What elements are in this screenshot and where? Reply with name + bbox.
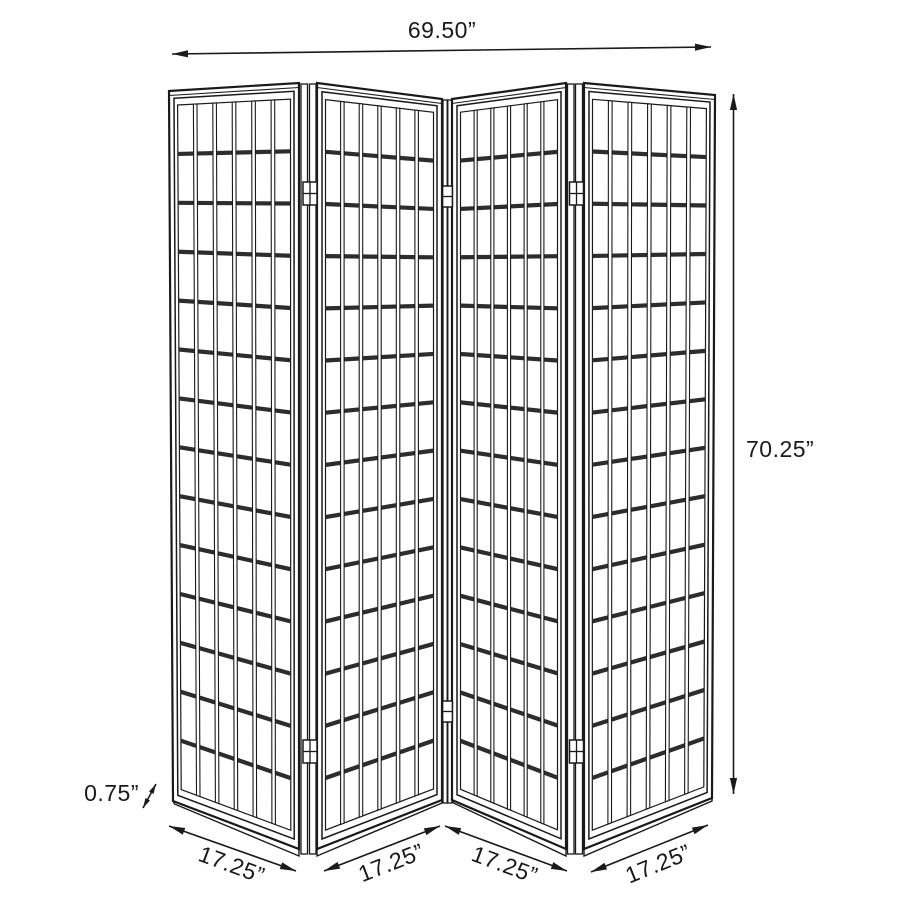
- hinge-block: [443, 701, 453, 722]
- total-width-dimension: 69.50”: [172, 17, 711, 54]
- panel-height-label: 70.25”: [746, 436, 814, 462]
- lattice-mullion: [524, 104, 527, 818]
- lattice-mullion: [627, 102, 632, 817]
- panel-width-label-4: 17.25”: [622, 839, 695, 889]
- panel-4: [584, 83, 715, 856]
- lattice-mullion: [474, 110, 477, 796]
- folding-screen-diagram: 69.50” 70.25” 0.75” 17.25” 17.25” 17.25”: [0, 0, 900, 900]
- lattice-mullion: [252, 101, 257, 818]
- panel-3: [452, 83, 566, 856]
- lattice-mullion: [271, 100, 275, 825]
- screen-panels: [169, 83, 715, 856]
- lattice-mullion: [396, 108, 400, 803]
- panel-2: [317, 83, 442, 856]
- hinge-block: [570, 740, 584, 763]
- panel-1: [169, 83, 299, 856]
- frame-thickness-arrow: [143, 784, 156, 808]
- hinge-block: [443, 186, 453, 207]
- total-width-label: 69.50”: [408, 17, 476, 43]
- frame-thickness-dimension: 0.75”: [84, 780, 156, 808]
- lattice-mullion: [341, 101, 345, 824]
- diagram-canvas: 69.50” 70.25” 0.75” 17.25” 17.25” 17.25”: [0, 0, 900, 900]
- lattice-mullion: [378, 106, 381, 810]
- hinge-block: [303, 182, 317, 205]
- frame-thickness-label: 0.75”: [84, 780, 139, 806]
- lattice-mullion: [359, 104, 363, 818]
- panel-height-dimension: 70.25”: [734, 94, 815, 794]
- lattice-mullion: [415, 110, 419, 796]
- lattice-mullion: [541, 102, 544, 825]
- lattice-mullion: [507, 106, 510, 810]
- lattice-mullion: [608, 101, 612, 825]
- hinge-block: [570, 182, 584, 205]
- lattice-mullion: [646, 104, 651, 809]
- lattice-mullion: [491, 108, 494, 803]
- total-width-arrow: [172, 47, 711, 54]
- hinge-block: [303, 740, 317, 763]
